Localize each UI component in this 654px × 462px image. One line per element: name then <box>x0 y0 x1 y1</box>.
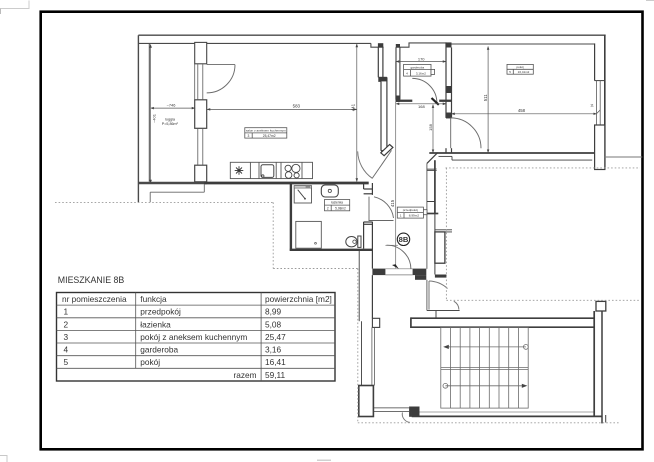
svg-text:~401: ~401 <box>152 114 157 123</box>
svg-text:2: 2 <box>64 319 69 329</box>
svg-text:garderoba: garderoba <box>410 65 424 69</box>
svg-text:415: 415 <box>390 199 395 207</box>
svg-text:511: 511 <box>483 94 488 101</box>
svg-text:5,08m2: 5,08m2 <box>335 206 346 210</box>
svg-text:pokój z aneksem kuchennym: pokój z aneksem kuchennym <box>140 332 247 342</box>
svg-text:funkcja: funkcja <box>140 294 167 304</box>
svg-text:8,99: 8,99 <box>265 307 282 317</box>
svg-text:16,41m2: 16,41m2 <box>518 70 530 74</box>
svg-text:P=5,86m²: P=5,86m² <box>162 122 179 126</box>
svg-text:25,47m2: 25,47m2 <box>263 134 276 138</box>
svg-text:2: 2 <box>327 206 329 210</box>
svg-text:158: 158 <box>428 123 433 130</box>
svg-text:441: 441 <box>350 103 355 111</box>
svg-text:nr pomieszczenia: nr pomieszczenia <box>62 294 127 304</box>
svg-text:przedpokój: przedpokój <box>140 307 181 317</box>
svg-text:458: 458 <box>518 108 526 113</box>
svg-text:3: 3 <box>247 134 249 138</box>
svg-text:8,99m2: 8,99m2 <box>409 214 420 218</box>
svg-text:1: 1 <box>64 307 69 317</box>
svg-text:salon z aneksem kuchennym: salon z aneksem kuchennym <box>246 129 286 133</box>
svg-text:powierzchnia [m2]: powierzchnia [m2] <box>265 294 332 304</box>
svg-text:25,47: 25,47 <box>265 332 286 342</box>
svg-text:MIESZKANIE 8B: MIESZKANIE 8B <box>58 275 125 285</box>
svg-text:168: 168 <box>418 104 425 109</box>
svg-text:59,11: 59,11 <box>265 370 286 380</box>
svg-text:pokój: pokój <box>517 65 525 69</box>
svg-text:łazienka: łazienka <box>140 319 171 329</box>
svg-text:4: 4 <box>64 345 69 355</box>
svg-text:3,16: 3,16 <box>265 345 282 355</box>
svg-text:3,16m2: 3,16m2 <box>416 71 426 75</box>
svg-text:5,08: 5,08 <box>265 319 282 329</box>
svg-text:1: 1 <box>400 214 402 218</box>
svg-text:583: 583 <box>293 103 301 108</box>
svg-text:5: 5 <box>64 357 69 367</box>
svg-text:16,41: 16,41 <box>265 357 286 367</box>
svg-text:przedpokój: przedpokój <box>403 208 418 212</box>
svg-text:8B: 8B <box>399 235 409 244</box>
svg-text:garderoba: garderoba <box>140 345 178 355</box>
svg-text:łazienka: łazienka <box>331 201 343 205</box>
svg-text:razem: razem <box>233 370 256 380</box>
svg-text:~746: ~746 <box>167 102 176 107</box>
svg-text:3: 3 <box>64 332 69 342</box>
svg-text:11: 11 <box>590 104 594 108</box>
svg-text:pokój: pokój <box>140 357 160 367</box>
svg-text:loggia: loggia <box>165 117 176 121</box>
svg-text:170: 170 <box>418 56 425 61</box>
